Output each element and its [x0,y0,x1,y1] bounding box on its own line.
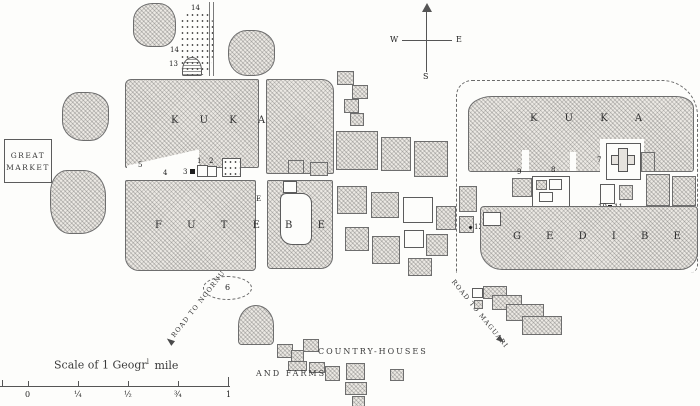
west-town-compound [280,193,312,245]
scale-tick-label: ½ [124,391,132,399]
north-road [209,2,214,76]
scale-tick-label: 0 [25,391,30,399]
great-market-box: GREAT MARKET [4,139,52,183]
scale-title-sup: l [147,358,149,366]
town-building [459,186,477,212]
town-building [646,174,670,206]
country-house [346,363,365,380]
marker-5: 5 [138,162,142,169]
suburb-block [436,206,456,230]
suburb-block [426,234,448,256]
suburb-compound [403,197,433,223]
town-building [536,180,547,190]
compass-horizontal-line [402,40,452,41]
marker-E: E [256,196,261,203]
country-house [474,300,483,309]
road-ngornu-label: ROAD TO NGORNU [170,269,227,339]
scale-title-suffix: mile [154,359,178,372]
north-arrow-icon [422,3,432,12]
scale-tick-label: ¾ [174,391,182,399]
marker-9: 9 [517,169,521,176]
compass-east-label: E [456,36,462,44]
scale-tick [128,381,129,387]
country-houses-label: COUNTRY-HOUSES [318,347,428,356]
scale-tick [78,381,79,387]
suburb-block [408,258,432,276]
scale-tick [28,381,29,387]
street-gap [522,150,529,171]
east-town-north-band [468,96,694,172]
marker-4: 4 [163,170,167,177]
building-13 [182,57,202,76]
country-house-blob [238,305,274,345]
scale-tick-label: ¼ [74,391,82,399]
town-compound [483,212,501,226]
street-building [288,160,304,174]
town-building [512,178,532,197]
country-house [352,396,365,406]
suburb-block [381,137,411,171]
country-house [390,369,404,381]
street-building [310,162,328,176]
marker-14-top: 14 [191,5,200,12]
compass-west-label: W [390,36,398,44]
palace-annex [641,152,655,172]
country-house [522,316,562,335]
suburb-block [352,85,368,99]
suburb-compound [404,230,424,248]
scale-tick [228,377,229,387]
and-farms-label: AND FARMS [256,369,326,378]
town-building [459,216,474,233]
marker-7: 7 [597,157,601,164]
marker-1: 1 [197,158,201,165]
suburb-block [336,131,378,170]
outskirt-blob [133,3,176,47]
marked-building [469,226,472,229]
suburb-block [337,186,367,214]
west-town-name: K U K A [171,115,274,126]
east-town-district: G E D I B E [513,231,692,242]
town-building [539,192,553,202]
historic-town-map: 14 14 13 W E S GREAT MARKET K U K A F U … [0,0,700,406]
scale-tick [178,381,179,387]
scale-title-prefix: Scale of 1 Geogr [54,359,147,372]
street-building [207,166,217,177]
suburb-block [372,236,400,264]
outskirt-blob [62,92,109,141]
west-town-district: F U T E B E [155,220,336,231]
great-market-label-1: GREAT [11,151,46,160]
scale-tick [2,380,3,387]
marker-8: 8 [551,167,555,174]
suburb-block [350,113,364,126]
town-building [600,184,615,204]
marker-13: 13 [169,61,178,68]
scale-bar-line [0,386,230,387]
great-market-label-2: MARKET [6,163,50,172]
scale-title: Scale of 1 Geogrl mile [54,358,178,372]
outskirt-blob [228,30,275,76]
town-building [619,185,633,200]
marked-building [190,169,195,174]
suburb-block [414,141,448,177]
outskirt-blob [50,170,106,234]
marker-3: 3 [183,169,187,176]
marker-6: 6 [225,284,230,292]
country-house [345,382,367,395]
marker-14-left: 14 [170,47,179,54]
west-town-compound [283,181,297,193]
palace-cross-building [618,148,628,172]
marker-2: 2 [209,158,213,165]
town-building [672,176,696,206]
suburb-block [337,71,354,85]
country-house [303,339,319,352]
suburb-block [371,192,399,218]
dotted-building [222,158,241,177]
country-house [472,288,483,298]
street-gap [570,152,576,171]
compass-south-label: S [423,73,428,81]
suburb-block [344,99,359,113]
scale-tick-label: 1 [226,391,231,399]
town-building [549,179,562,190]
suburb-block [345,227,369,251]
east-town-name: K U K A [530,113,654,124]
compass-vertical-line [426,10,427,72]
country-house [325,366,340,381]
